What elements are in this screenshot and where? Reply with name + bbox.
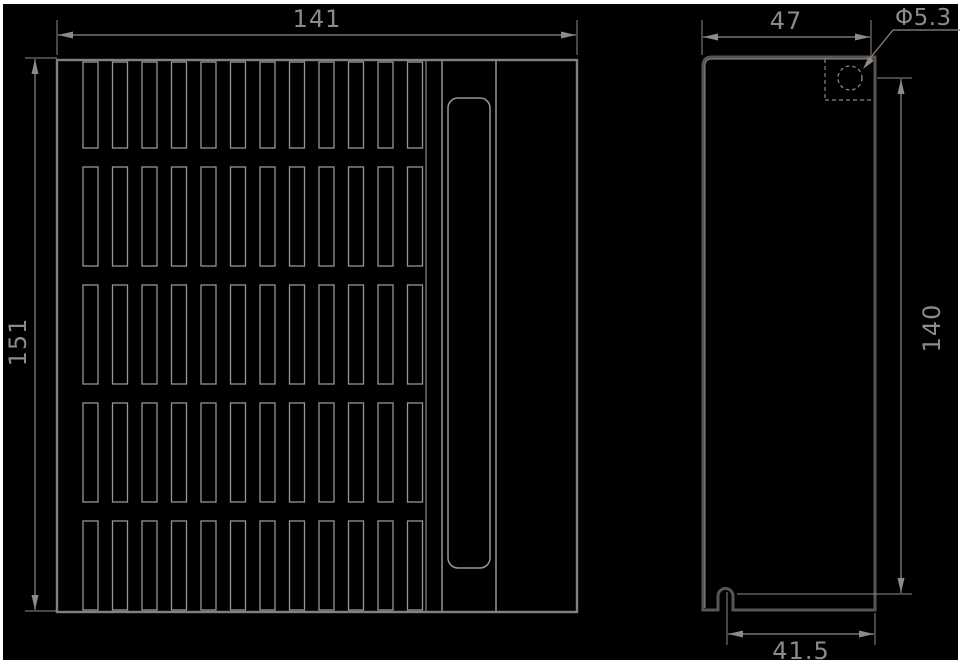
dim-width-label: 141 — [293, 5, 342, 33]
dim-mount-height-label: 140 — [918, 304, 946, 353]
dim-depth-label: 47 — [770, 7, 803, 35]
dim-height-label: 151 — [4, 318, 32, 367]
dim-hole-label: Φ5.3 — [895, 5, 952, 31]
drawing-background — [3, 4, 958, 660]
dim-mount-width-label: 41.5 — [772, 637, 829, 665]
drawing-page: 141 151 47 Φ5.3 140 — [0, 0, 962, 665]
drawing-canvas: 141 151 47 Φ5.3 140 — [0, 0, 962, 665]
